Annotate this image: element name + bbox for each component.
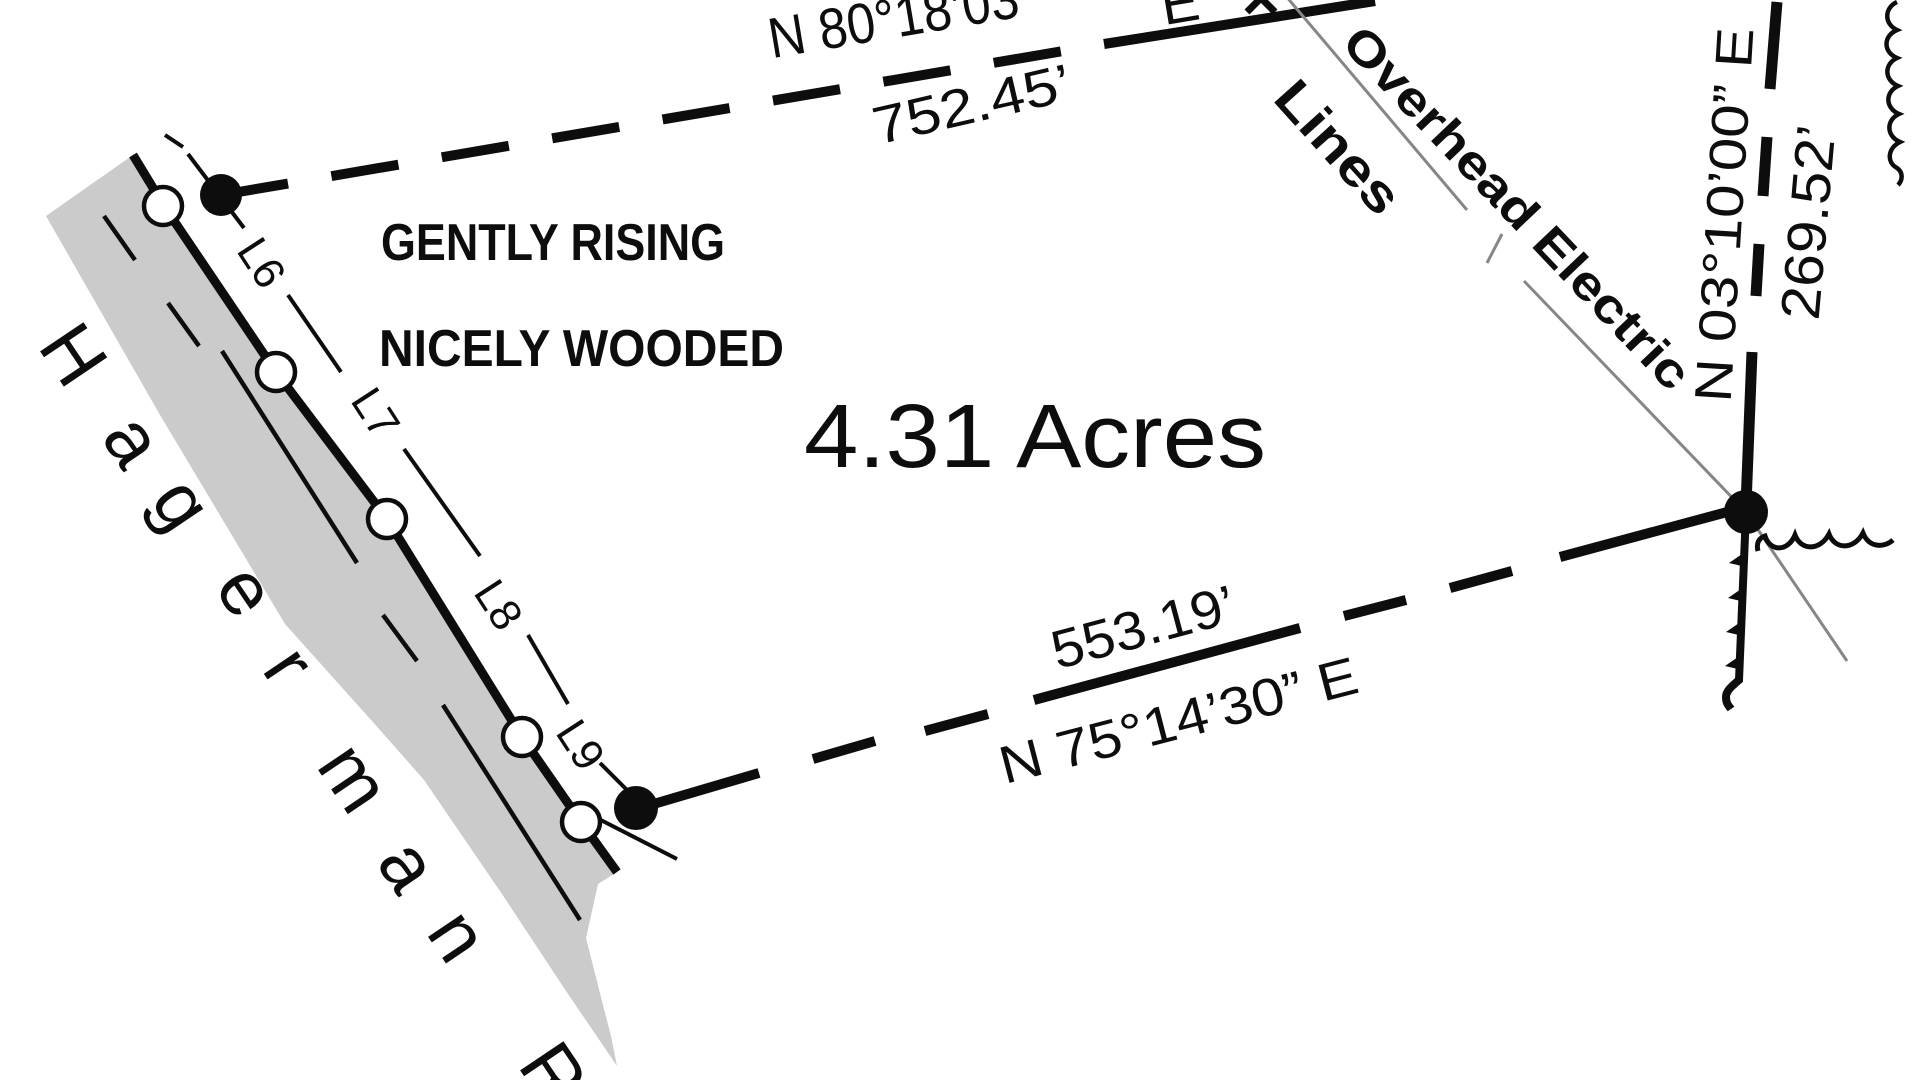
svg-text:4.31 Acres: 4.31 Acres	[804, 387, 1266, 487]
svg-text:GENTLY RISING: GENTLY RISING	[381, 214, 725, 272]
svg-text:NICELY WOODED: NICELY WOODED	[379, 320, 784, 378]
